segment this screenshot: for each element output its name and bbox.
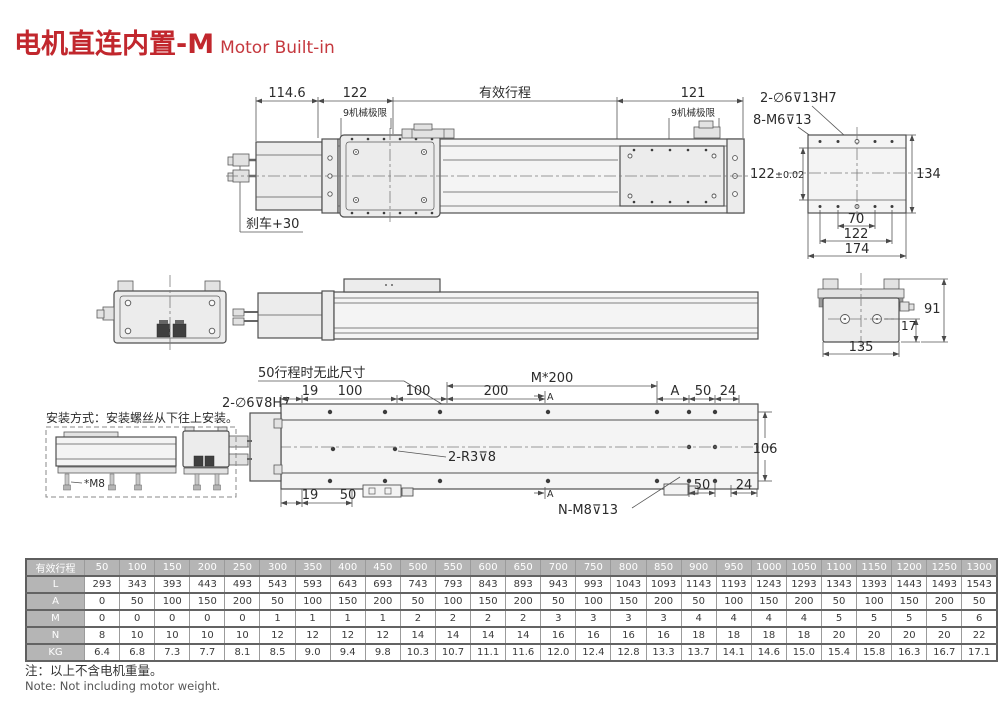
spec-cell: 893	[506, 576, 541, 593]
row-label: M	[26, 610, 85, 627]
spec-cell: 10	[155, 627, 190, 644]
dim-17: 17	[901, 319, 916, 333]
spec-cell: 1543	[962, 576, 997, 593]
stroke-header-cell: 1050	[786, 559, 821, 576]
stroke-header-cell: 350	[295, 559, 330, 576]
table-row: L293343393443493543593643693743793843893…	[26, 576, 997, 593]
spec-cell: 2	[471, 610, 506, 627]
spec-cell: 4	[786, 610, 821, 627]
spec-cell: 12.0	[541, 644, 576, 661]
spec-cell: 200	[225, 593, 260, 610]
spec-cell: 14.6	[751, 644, 786, 661]
dim-135: 135	[849, 340, 874, 355]
footnote: 注：以上不含电机重量。 Note: Not including motor we…	[25, 663, 220, 693]
spec-cell: 14	[435, 627, 470, 644]
row-label: KG	[26, 644, 85, 661]
dim-200: 200	[484, 384, 509, 399]
spec-cell: 293	[85, 576, 120, 593]
spec-cell: 18	[751, 627, 786, 644]
installation-diagram: 安装方式：安装螺丝从下往上安装。 *M8	[46, 410, 238, 497]
spec-cell: 2	[435, 610, 470, 627]
spec-cell: 1	[260, 610, 295, 627]
spec-cell: 843	[471, 576, 506, 593]
stroke-header-cell: 150	[155, 559, 190, 576]
dim-50b: 50	[340, 488, 357, 503]
spec-cell: 1343	[821, 576, 856, 593]
connector-plug	[173, 324, 186, 337]
stroke-header-cell: 800	[611, 559, 646, 576]
m8-screw-label: *M8	[84, 478, 105, 490]
spec-cell: 200	[646, 593, 681, 610]
spec-cell: 0	[85, 593, 120, 610]
spec-cell: 50	[962, 593, 997, 610]
spec-cell: 200	[927, 593, 962, 610]
spec-cell: 1	[365, 610, 400, 627]
pin-holes-callout: 2-R3⊽8	[448, 450, 496, 465]
spec-cell: 5	[857, 610, 892, 627]
mounting-screws-end	[194, 474, 221, 490]
dim-174: 174	[845, 242, 870, 257]
sensor-clamp	[664, 484, 688, 495]
spec-cell: 15.8	[857, 644, 892, 661]
stroke-header-cell: 1150	[857, 559, 892, 576]
spec-cell: 1443	[892, 576, 927, 593]
spec-cell: 5	[927, 610, 962, 627]
spec-cell: 3	[541, 610, 576, 627]
spec-cell: 20	[821, 627, 856, 644]
spec-cell: 993	[576, 576, 611, 593]
dim-50c: 50	[694, 478, 711, 493]
stroke-header-cell: 500	[400, 559, 435, 576]
spec-cell: 5	[821, 610, 856, 627]
stroke-header-label: 有效行程	[26, 559, 85, 576]
spec-cell: 0	[120, 610, 155, 627]
stroke-header-cell: 100	[120, 559, 155, 576]
row-label: L	[26, 576, 85, 593]
spec-cell: 9.0	[295, 644, 330, 661]
datasheet-page: 电机直连内置-MMotor Built-in 114.6 122 有效行程 12…	[0, 0, 1000, 704]
table-row: N810101010121212121414141416161616181818…	[26, 627, 997, 644]
spec-cell: 2	[506, 610, 541, 627]
spec-cell: 100	[295, 593, 330, 610]
stroke-header-cell: 50	[85, 559, 120, 576]
side-view: 17 91 135	[97, 273, 948, 357]
spec-cell: 2	[400, 610, 435, 627]
spec-cell: 14.1	[716, 644, 751, 661]
spec-cell: 50	[821, 593, 856, 610]
brake-label: 刹车+30	[246, 216, 299, 232]
spec-cell: 14	[506, 627, 541, 644]
spec-cell: 100	[435, 593, 470, 610]
table-row: KG6.46.87.37.78.18.59.09.49.810.310.711.…	[26, 644, 997, 661]
spec-cell: 8.5	[260, 644, 295, 661]
spec-cell: 0	[85, 610, 120, 627]
limit-sensor-right	[694, 127, 720, 138]
spec-cell: 13.7	[681, 644, 716, 661]
spec-cell: 14	[471, 627, 506, 644]
spec-cell: 150	[611, 593, 646, 610]
spec-cell: 18	[786, 627, 821, 644]
spec-cell: 3	[576, 610, 611, 627]
spec-cell: 0	[225, 610, 260, 627]
spec-cell: 150	[190, 593, 225, 610]
install-caption: 安装方式：安装螺丝从下往上安装。	[46, 410, 238, 425]
dim-122b: 122	[844, 227, 869, 242]
spec-cell: 20	[927, 627, 962, 644]
dim-122: 122	[343, 86, 368, 101]
stroke-header-cell: 700	[541, 559, 576, 576]
stroke-header-cell: 300	[260, 559, 295, 576]
stroke-header-cell: 1000	[751, 559, 786, 576]
spec-cell: 200	[506, 593, 541, 610]
spec-cell: 12	[365, 627, 400, 644]
spec-cell: 12	[330, 627, 365, 644]
spec-cell: 443	[190, 576, 225, 593]
spec-cell: 3	[646, 610, 681, 627]
spec-cell: 10	[120, 627, 155, 644]
rail-body-side	[334, 292, 758, 339]
spec-cell: 593	[295, 576, 330, 593]
spec-cell: 0	[190, 610, 225, 627]
stroke-header-cell: 1200	[892, 559, 927, 576]
spec-cell: 643	[330, 576, 365, 593]
spec-cell: 16	[611, 627, 646, 644]
spec-cell: 8	[85, 627, 120, 644]
spec-cell: 150	[892, 593, 927, 610]
mech-limit-right: 9机械极限	[671, 107, 716, 119]
spec-cell: 50	[681, 593, 716, 610]
spec-cell: 150	[751, 593, 786, 610]
spec-cell: 16	[541, 627, 576, 644]
dim-19b: 19	[302, 488, 319, 503]
section-a-bottom: A	[547, 489, 554, 500]
stroke-header-cell: 250	[225, 559, 260, 576]
spec-cell: 1	[295, 610, 330, 627]
spec-cell: 8.1	[225, 644, 260, 661]
stroke-header-cell: 950	[716, 559, 751, 576]
spec-cell: 12.8	[611, 644, 646, 661]
dim-121: 121	[681, 86, 706, 101]
thread-holes-callout: N-M8⊽13	[558, 503, 618, 518]
spec-cell: 7.7	[190, 644, 225, 661]
spec-cell: 4	[716, 610, 751, 627]
top-view: 114.6 122 有效行程 121 9机械极限 9机械极限 刹车+30	[226, 86, 752, 232]
no-dim-note: 50行程时无此尺寸	[258, 366, 366, 381]
spec-cell: 793	[435, 576, 470, 593]
spec-cell: 6.4	[85, 644, 120, 661]
spec-cell: 4	[681, 610, 716, 627]
dim-100b: 100	[406, 384, 431, 399]
footnote-cn: 注：以上不含电机重量。	[25, 663, 220, 679]
table-row: M00000111122223333444455556	[26, 610, 997, 627]
spec-cell: 15.0	[786, 644, 821, 661]
dim-24b: 24	[736, 478, 753, 493]
spec-cell: 1293	[786, 576, 821, 593]
spec-cell: 11.6	[506, 644, 541, 661]
spec-cell: 493	[225, 576, 260, 593]
spec-cell: 16.3	[892, 644, 927, 661]
row-label: N	[26, 627, 85, 644]
spec-cell: 6	[962, 610, 997, 627]
stroke-header-cell: 1250	[927, 559, 962, 576]
stroke-header-cell: 450	[365, 559, 400, 576]
spec-cell: 50	[541, 593, 576, 610]
spec-cell: 12	[260, 627, 295, 644]
spec-cell: 150	[471, 593, 506, 610]
spec-cell: 22	[962, 627, 997, 644]
effective-stroke-label: 有效行程	[479, 86, 531, 101]
spec-cell: 150	[330, 593, 365, 610]
spec-cell: 4	[751, 610, 786, 627]
stroke-header-cell: 1300	[962, 559, 997, 576]
mech-limit-left: 9机械极限	[343, 107, 388, 119]
dim-122-tol-main: 122	[750, 167, 775, 182]
stroke-header-cell: 900	[681, 559, 716, 576]
spec-cell: 50	[120, 593, 155, 610]
spec-cell: 13.3	[646, 644, 681, 661]
page-title-en: Motor Built-in	[220, 38, 335, 58]
spec-cell: 100	[155, 593, 190, 610]
stroke-header-cell: 650	[506, 559, 541, 576]
spec-cell: 100	[857, 593, 892, 610]
row-label: A	[26, 593, 85, 610]
spec-cell: 100	[716, 593, 751, 610]
dim-100a: 100	[338, 384, 363, 399]
connector-plug	[157, 324, 170, 337]
spec-cell: 200	[365, 593, 400, 610]
threads-callout: 8-M6⊽13	[753, 113, 812, 128]
spec-cell: 343	[120, 576, 155, 593]
spec-cell: 1393	[857, 576, 892, 593]
dowel-holes-callout: 2-∅6⊽8H7	[222, 396, 290, 411]
dim-m200: M*200	[531, 371, 574, 386]
page-title: 电机直连内置-MMotor Built-in	[14, 22, 335, 61]
spec-cell: 5	[892, 610, 927, 627]
spec-cell: 693	[365, 576, 400, 593]
footnote-en: Note: Not including motor weight.	[25, 679, 220, 693]
spec-cell: 6.8	[120, 644, 155, 661]
spec-cell: 1093	[646, 576, 681, 593]
stroke-header-cell: 1100	[821, 559, 856, 576]
spec-cell: 10.7	[435, 644, 470, 661]
spec-cell: 943	[541, 576, 576, 593]
spec-cell: 100	[576, 593, 611, 610]
spec-cell: 7.3	[155, 644, 190, 661]
motor-body-side	[258, 293, 322, 338]
page-title-cn: 电机直连内置-M	[14, 29, 214, 60]
dim-134: 134	[916, 167, 941, 182]
spec-cell: 50	[260, 593, 295, 610]
spec-cell: 18	[716, 627, 751, 644]
spec-cell: 15.4	[821, 644, 856, 661]
stroke-header-cell: 400	[330, 559, 365, 576]
dim-19a: 19	[302, 384, 319, 399]
spec-cell: 10	[190, 627, 225, 644]
spec-cell: 9.8	[365, 644, 400, 661]
spec-cell: 20	[892, 627, 927, 644]
spec-cell: 1493	[927, 576, 962, 593]
stroke-header-cell: 600	[471, 559, 506, 576]
stroke-header-cell: 550	[435, 559, 470, 576]
stroke-header-cell: 850	[646, 559, 681, 576]
spec-cell: 16	[576, 627, 611, 644]
spec-cell: 11.1	[471, 644, 506, 661]
spec-cell: 543	[260, 576, 295, 593]
spec-cell: 1243	[751, 576, 786, 593]
technical-drawing: 114.6 122 有效行程 121 9机械极限 9机械极限 刹车+30	[0, 70, 1000, 560]
dim-a: A	[671, 384, 680, 399]
spec-cell: 17.1	[962, 644, 997, 661]
dim-50a: 50	[695, 384, 712, 399]
holes-callout: 2-∅6⊽13H7	[760, 91, 837, 106]
spec-cell: 743	[400, 576, 435, 593]
spec-cell: 16	[646, 627, 681, 644]
spec-cell: 393	[155, 576, 190, 593]
table-row: A050100150200501001502005010015020050100…	[26, 593, 997, 610]
slider-detail-view: 2-∅6⊽13H7 8-M6⊽13 122 ±0.02 134 70	[750, 91, 941, 259]
spec-cell: 50	[400, 593, 435, 610]
spec-cell: 10.3	[400, 644, 435, 661]
stroke-header-cell: 750	[576, 559, 611, 576]
spec-cell: 20	[857, 627, 892, 644]
spec-cell: 10	[225, 627, 260, 644]
dim-70: 70	[848, 212, 865, 227]
dim-24a: 24	[720, 384, 737, 399]
section-a-top: A	[547, 392, 554, 403]
spec-cell: 9.4	[330, 644, 365, 661]
spec-cell: 14	[400, 627, 435, 644]
stroke-header-cell: 200	[190, 559, 225, 576]
dim-106: 106	[753, 442, 778, 457]
spec-cell: 0	[155, 610, 190, 627]
spec-cell: 1043	[611, 576, 646, 593]
spec-cell: 1	[330, 610, 365, 627]
spec-cell: 200	[786, 593, 821, 610]
rail-body-bottom	[281, 404, 758, 489]
dim-91: 91	[924, 302, 941, 317]
bottom-view: 50行程时无此尺寸 2-∅6⊽8H7 M*200 19 100 100 200	[216, 366, 777, 518]
spec-cell: 12.4	[576, 644, 611, 661]
spec-cell: 1193	[716, 576, 751, 593]
spec-cell: 3	[611, 610, 646, 627]
spec-cell: 12	[295, 627, 330, 644]
spec-cell: 18	[681, 627, 716, 644]
dim-114-6: 114.6	[268, 86, 305, 101]
dim-122-tol: ±0.02	[775, 170, 804, 181]
spec-cell: 1143	[681, 576, 716, 593]
spec-table: 有效行程501001502002503003504004505005506006…	[25, 558, 998, 662]
spec-cell: 16.7	[927, 644, 962, 661]
